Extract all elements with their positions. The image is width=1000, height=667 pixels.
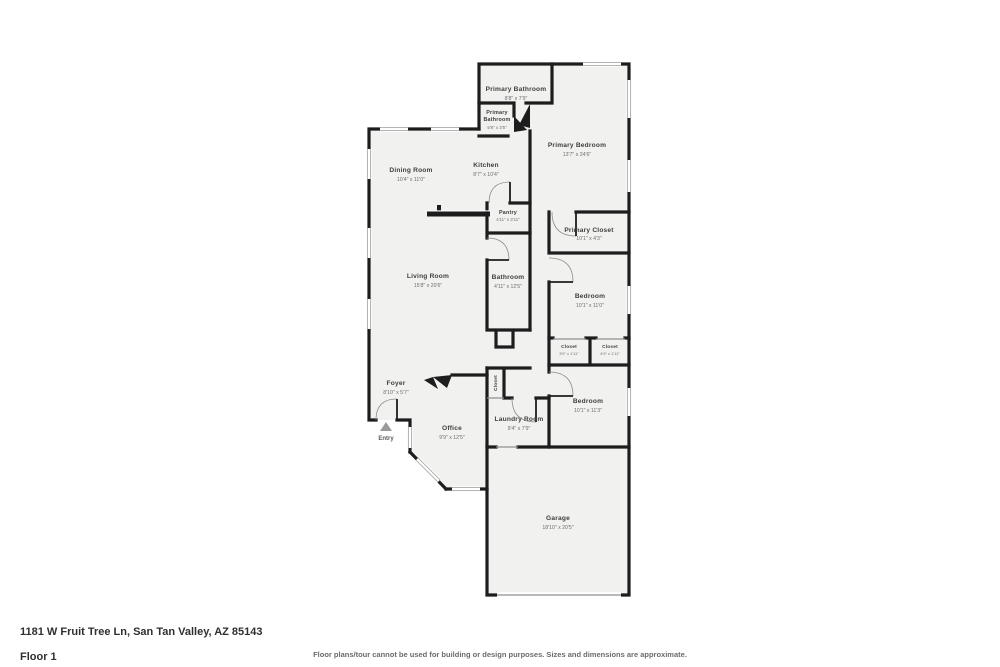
room-label: Office [442,425,462,432]
room-label: Primary Bedroom [548,142,606,149]
room-dims: 4'9" x 1'11" [600,351,620,356]
room-label: Closet [493,375,499,391]
room-label: Garage [546,515,570,522]
floor-plan-page: Primary Bathroom 8'8" x 7'9" Primary Bat… [0,0,1000,667]
room-label: Foyer [387,380,406,387]
room-dims: 18'10" x 20'5" [542,525,573,531]
room-dims: 9'4" x 7'9" [508,426,531,432]
entry-label: Entry [378,436,394,442]
room-label: Primary Closet [564,227,614,234]
room-label: Closet [602,344,618,350]
room-dims: 10'1" x 4'3" [576,236,602,242]
room-dims: 15'8" x 20'6" [414,283,443,289]
room-dims: 8'10" x 5'7" [383,390,409,396]
room-dims: 10'1" x 11'0" [576,303,604,309]
disclaimer-text: Floor plans/tour cannot be used for buil… [0,650,1000,659]
room-label: Closet [561,344,577,350]
room-dims: 9'9" x 12'5" [439,435,465,441]
room-label: Dining Room [389,167,432,174]
room-label: Primary [486,110,507,116]
room-label: Living Room [407,273,449,280]
room-label: Bedroom [575,293,605,300]
room-hall-closet: Closet [493,375,499,391]
room-dims: 5'8" x 3'5" [487,125,507,130]
room-label: Bedroom [573,398,603,405]
floor-plan: Primary Bathroom 8'8" x 7'9" Primary Bat… [0,0,1000,667]
room-dims: 4'11" x 12'5" [494,284,522,290]
room-label: Pantry [499,210,517,216]
room-label: Laundry Room [495,416,544,423]
room-label: Kitchen [473,162,499,169]
room-dims: 10'1" x 11'3" [574,408,602,414]
room-dims: 8'7" x 10'4" [473,172,499,178]
room-dims: 8'8" x 7'9" [505,96,528,102]
room-primary-bathroom-small: Primary Bathroom 5'8" x 3'5" [483,110,510,130]
property-address: 1181 W Fruit Tree Ln, San Tan Valley, AZ… [20,626,263,638]
room-label: Bathroom [492,274,525,281]
room-dims: 4'11" x 3'11" [496,217,520,222]
room-dims: 13'7" x 24'6" [563,152,592,158]
entry-triangle-up-icon [380,422,392,431]
room-dims: 10'4" x 11'0" [397,177,425,183]
room-dims: 3'0" x 1'11" [559,351,579,356]
room-label: Bathroom [483,117,510,123]
entry-marker: Entry [378,422,394,442]
room-label: Primary Bathroom [486,86,547,93]
